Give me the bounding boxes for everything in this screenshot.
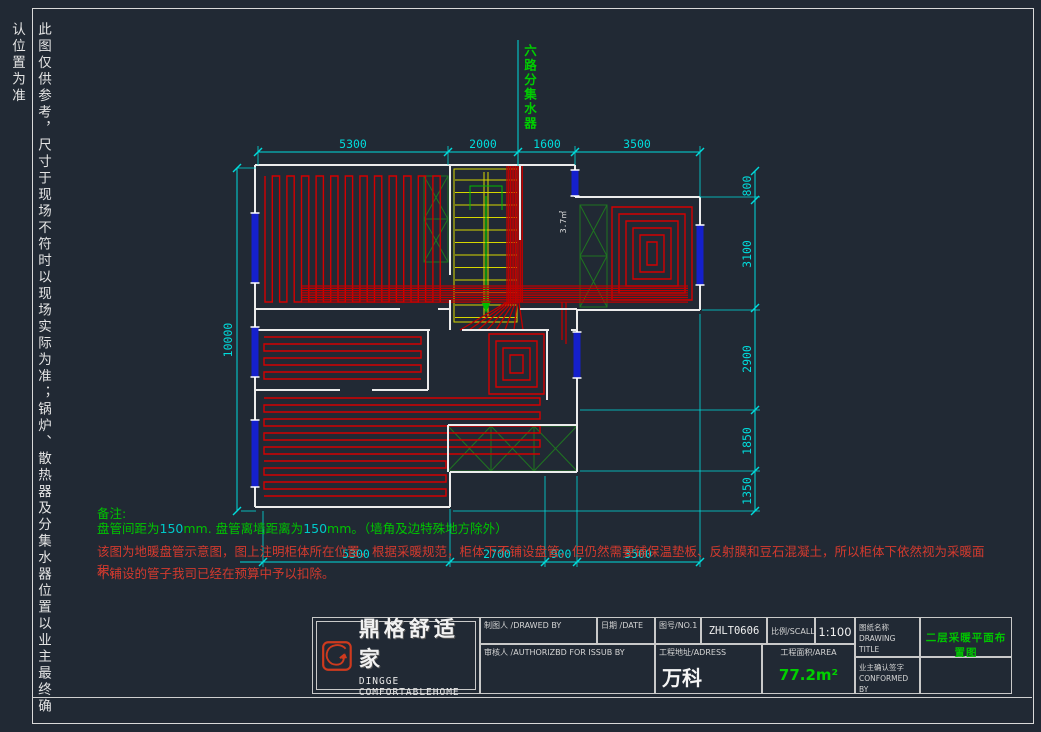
disclaimer-text: 此图仅供参考，尺寸于现场不符时以现场实际为准；锅炉、散热器及分集水器位置以业主最… [4,22,56,722]
brand-name-en: DINGGE COMFORTABLEHOME [359,676,471,698]
checked-by-label: 审核人 /AUTHORIZBD FOR ISSUB BY [481,645,654,660]
drawing-title-label-cn: 图纸名称 [859,622,916,633]
confirm-value-cell [920,657,1012,694]
title-block: 鼎格舒适家 DINGGE COMFORTABLEHOME 制图人 /DRAWED… [312,617,1012,694]
drawing-title-value: 二层采暖平面布置图 [921,618,1011,660]
scale-value-cell: 1:100 [815,617,855,644]
confirm-label-cn: 业主确认签字 [859,662,916,673]
drawing-no-value: ZHLT0606 [702,618,766,637]
drawn-by-label: 制图人 /DRAWED BY [481,618,596,633]
drawing-no-value-cell: ZHLT0606 [701,617,767,644]
drawing-title-value-cell: 二层采暖平面布置图 [920,617,1012,657]
address-cell: 工程地址/ADRESS 万科 [655,644,762,694]
area-label: 工程面积/AREA [763,645,854,660]
area-value: 77.2m² [763,666,854,684]
scale-label: 比例/SCALL [768,618,814,639]
logo-cell: 鼎格舒适家 DINGGE COMFORTABLEHOME [312,617,480,694]
scale-label-cell: 比例/SCALL [767,617,815,644]
date-label: 日期 /DATE [598,618,654,633]
checked-by-cell: 审核人 /AUTHORIZBD FOR ISSUB BY [480,644,655,694]
drawing-title-label-cell: 图纸名称 DRAWING TITLE [855,617,920,657]
drawn-by-cell: 制图人 /DRAWED BY [480,617,597,644]
dingge-logo-icon [321,634,353,678]
address-value: 万科 [656,660,761,693]
manifold-label: 六路分集水器 [520,44,539,131]
area-cell: 工程面积/AREA 77.2m² [762,644,855,694]
drawing-no-label-cell: 图号/NO.1 [655,617,701,644]
cad-canvas: 5300 2000 1600 3500 5300 2700 900 3500 1… [0,0,1041,732]
confirm-label-en: CONFORMED BY [859,673,916,695]
address-label: 工程地址/ADRESS [656,645,761,660]
scale-value: 1:100 [816,618,854,639]
drawing-no-label: 图号/NO.1 [656,618,700,633]
confirm-label-cell: 业主确认签字 CONFORMED BY [855,657,920,694]
date-cell: 日期 /DATE [597,617,655,644]
drawing-title-label-en: DRAWING TITLE [859,633,916,655]
brand-name-cn: 鼎格舒适家 [359,613,471,673]
